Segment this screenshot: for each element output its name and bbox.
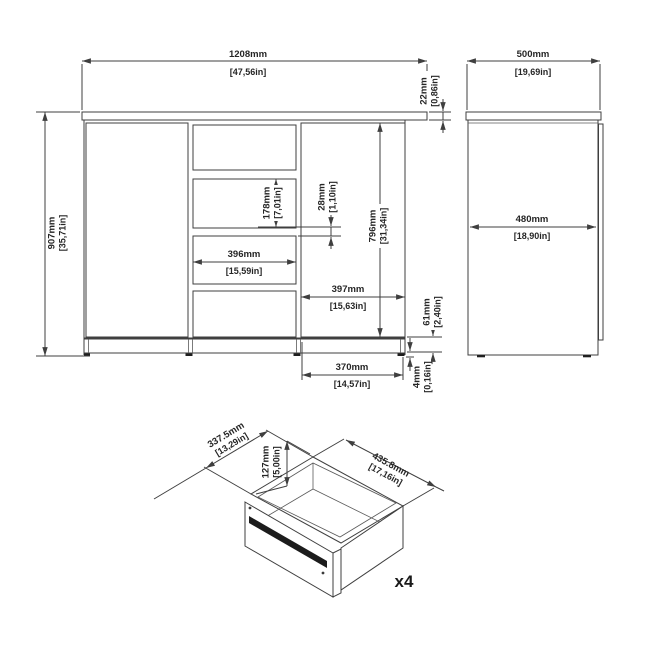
dim-value-in: [14,57in] [334,379,371,389]
dim-middle-drawer-height: 178mm [7,01in] [261,179,283,227]
dim-value-in: [0,16in] [423,361,433,393]
dim-value-mm: 370mm [336,362,369,373]
dim-value-in: [18,90in] [514,231,551,241]
front-left-door [86,123,188,337]
dim-value-mm: 28mm [317,183,328,210]
front-drawer-3 [193,236,296,284]
dim-value-in: [5,00in] [272,446,282,478]
dim-value-mm: 1208mm [229,49,267,60]
dim-value-mm: 500mm [517,49,550,60]
drawer-quantity-label: x4 [395,572,414,591]
dim-value-in: [7,01in] [273,187,283,219]
dim-value-mm: 480mm [516,214,549,225]
front-feet [84,354,405,357]
technical-drawing-page: 1208mm [47,56in] 22mm [0,86in] 907mm [35… [0,0,650,650]
side-view: 500mm [19,69in] 480mm [18,90in] [466,49,603,357]
dim-value-mm: 22mm [419,77,430,104]
drawer-view: 337.5mm [13,29in] 127mm [5,00in] 435.8mm… [154,420,444,597]
dim-overall-width: 1208mm [47,56in] [82,49,427,77]
dim-value-in: [2,40in] [433,296,443,328]
front-view: 1208mm [47,56in] 22mm [0,86in] 907mm [35… [36,49,451,395]
dim-plinth-height: 61mm [2,40in] [422,294,443,359]
dim-value-mm: 178mm [262,187,273,220]
dim-value-mm: 397mm [332,284,365,295]
dim-overall-depth: 500mm [19,69in] [467,49,600,77]
dim-value-in: [1,10in] [328,181,338,213]
dim-value-in: [0,86in] [430,75,440,107]
dim-value-in: [15,63in] [330,301,367,311]
drawer-screw-hole-2 [322,572,325,575]
dim-value-mm: 796mm [368,210,379,243]
dim-value-in: [31,34in] [379,208,389,245]
front-plinth [84,339,405,353]
side-door-edge [599,124,604,340]
dim-foot-height: 4mm [0,16in] [410,338,433,395]
dim-value-mm: 127mm [261,446,272,479]
dim-overall-height: 907mm [35,71in] [45,112,68,356]
dim-plinth-width: 370mm [14,57in] [302,362,403,389]
dim-value-mm: 396mm [228,249,261,260]
front-drawer-4 [193,291,296,337]
dim-value-mm: 61mm [422,298,433,325]
dim-value-in: [19,69in] [515,67,552,77]
dim-value-in: [47,56in] [230,67,267,77]
drawer-front-panel-edge [333,549,341,597]
dim-value-in: [15,59in] [226,266,263,276]
dim-value-mm: 4mm [412,366,423,388]
dim-value-in: [35,71in] [58,215,68,252]
dim-top-thickness: 22mm [0,86in] [419,71,444,133]
front-drawer-1 [193,125,296,170]
drawer-screw-hole-1 [249,507,252,510]
drawing-svg: 1208mm [47,56in] 22mm [0,86in] 907mm [35… [0,0,650,650]
dim-value-mm: 907mm [47,217,58,250]
side-top-panel [466,112,601,120]
front-top-panel [82,112,427,120]
